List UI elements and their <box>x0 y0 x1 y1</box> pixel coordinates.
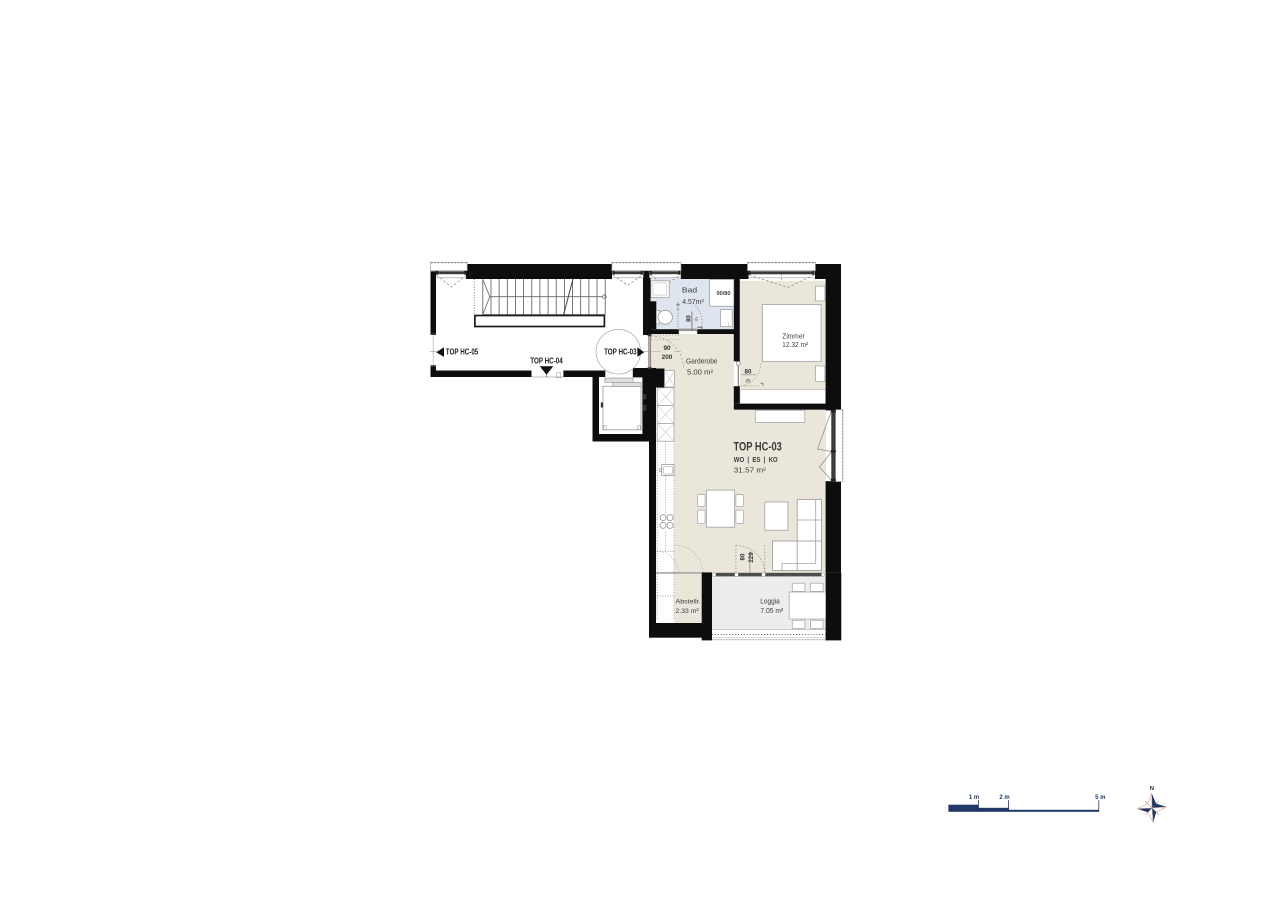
svg-text:Loggia: Loggia <box>760 596 780 605</box>
svg-text:WO | ES | KO: WO | ES | KO <box>734 455 778 464</box>
svg-text:Garderobe: Garderobe <box>686 356 718 365</box>
svg-text:4.57m²: 4.57m² <box>682 297 704 306</box>
svg-text:rh: rh <box>694 317 700 322</box>
svg-text:rh: rh <box>746 379 751 385</box>
svg-text:31.57 m²: 31.57 m² <box>734 466 767 475</box>
svg-text:12.32 m²: 12.32 m² <box>782 340 809 349</box>
svg-text:N: N <box>1150 786 1154 792</box>
svg-text:TOP HC-03: TOP HC-03 <box>734 440 783 453</box>
svg-text:200: 200 <box>662 354 673 361</box>
svg-text:1 m: 1 m <box>969 795 979 801</box>
svg-text:80: 80 <box>745 369 752 376</box>
svg-text:80: 80 <box>740 553 747 560</box>
svg-text:7.05 m²: 7.05 m² <box>760 606 783 615</box>
svg-text:90: 90 <box>663 345 671 352</box>
svg-text:229: 229 <box>748 552 755 563</box>
svg-text:5.00 m²: 5.00 m² <box>687 367 714 376</box>
svg-text:TOP HC-05: TOP HC-05 <box>446 347 479 356</box>
svg-text:Abstellr.: Abstellr. <box>676 599 701 606</box>
svg-text:80: 80 <box>687 315 693 322</box>
svg-text:TOP HC-04: TOP HC-04 <box>530 356 563 365</box>
svg-text:90/80: 90/80 <box>717 291 731 297</box>
svg-text:2 m: 2 m <box>999 795 1009 801</box>
svg-text:TOP HC-03: TOP HC-03 <box>604 347 637 356</box>
svg-text:5 m: 5 m <box>1095 795 1105 801</box>
svg-text:2.33 m²: 2.33 m² <box>676 608 700 615</box>
svg-text:Bad: Bad <box>682 285 697 294</box>
